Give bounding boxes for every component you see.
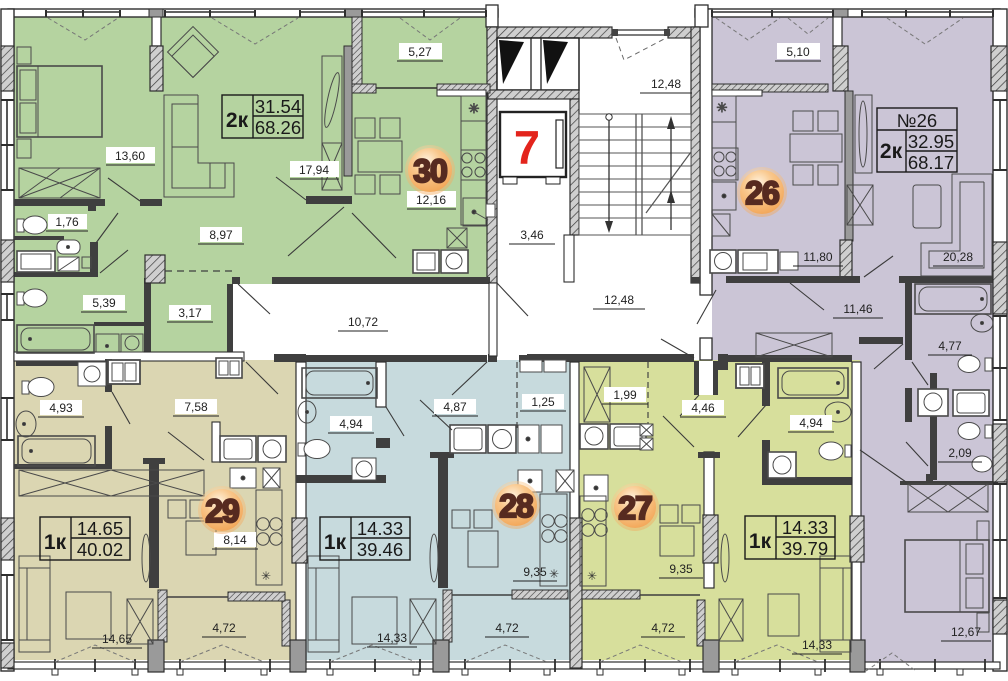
svg-text:68.26: 68.26	[255, 117, 301, 138]
svg-text:14,33: 14,33	[802, 638, 832, 652]
svg-text:14,65: 14,65	[102, 632, 132, 646]
svg-text:11,46: 11,46	[843, 302, 872, 316]
svg-text:3,17: 3,17	[178, 306, 202, 320]
svg-text:9,35: 9,35	[523, 565, 547, 579]
svg-text:4,93: 4,93	[49, 401, 73, 415]
svg-text:13,60: 13,60	[115, 149, 145, 163]
svg-text:12,16: 12,16	[416, 193, 446, 207]
svg-text:4,94: 4,94	[799, 416, 823, 430]
svg-text:3,46: 3,46	[520, 228, 544, 242]
svg-text:✳: ✳	[717, 100, 728, 115]
svg-text:4,72: 4,72	[651, 621, 675, 635]
svg-text:12,48: 12,48	[604, 293, 634, 307]
svg-text:1к: 1к	[44, 531, 67, 554]
svg-text:✳: ✳	[549, 567, 559, 581]
svg-text:11,80: 11,80	[803, 250, 832, 264]
svg-text:39.46: 39.46	[357, 539, 403, 560]
svg-text:4,87: 4,87	[443, 400, 467, 414]
svg-text:14.33: 14.33	[357, 518, 403, 539]
svg-text:4,94: 4,94	[339, 417, 363, 431]
svg-text:27: 27	[618, 490, 652, 526]
svg-text:29: 29	[205, 493, 239, 529]
svg-text:1,25: 1,25	[531, 395, 555, 409]
svg-text:5,39: 5,39	[92, 296, 116, 310]
svg-text:5,10: 5,10	[786, 45, 810, 59]
svg-text:30: 30	[413, 153, 447, 189]
svg-text:2к: 2к	[226, 109, 249, 132]
svg-text:14.65: 14.65	[77, 518, 123, 539]
svg-text:1к: 1к	[324, 531, 347, 554]
svg-text:7,58: 7,58	[184, 400, 208, 414]
svg-text:39.79: 39.79	[782, 538, 828, 559]
svg-text:2,09: 2,09	[948, 446, 972, 460]
svg-text:9,35: 9,35	[669, 562, 693, 576]
svg-text:10,72: 10,72	[348, 315, 378, 329]
svg-text:✳: ✳	[261, 569, 271, 583]
svg-text:8,97: 8,97	[209, 228, 233, 242]
svg-text:4,77: 4,77	[938, 339, 962, 353]
svg-text:5,27: 5,27	[408, 45, 432, 59]
svg-text:4,72: 4,72	[495, 621, 519, 635]
svg-text:1к: 1к	[749, 530, 772, 553]
svg-text:40.02: 40.02	[77, 539, 123, 560]
svg-text:1,99: 1,99	[613, 388, 637, 402]
svg-text:4,72: 4,72	[212, 621, 236, 635]
svg-text:26: 26	[745, 175, 779, 211]
svg-text:✳: ✳	[469, 101, 480, 116]
svg-text:20,28: 20,28	[943, 250, 973, 264]
svg-text:12,48: 12,48	[651, 77, 681, 91]
svg-text:14.33: 14.33	[782, 517, 828, 538]
svg-text:68.17: 68.17	[908, 152, 954, 173]
svg-text:1,76: 1,76	[55, 215, 79, 229]
svg-text:32.95: 32.95	[908, 131, 954, 152]
svg-text:4,46: 4,46	[691, 401, 715, 415]
svg-text:14,33: 14,33	[377, 631, 407, 645]
svg-text:28: 28	[499, 488, 533, 524]
svg-text:2к: 2к	[880, 140, 903, 163]
svg-text:7: 7	[514, 121, 540, 174]
svg-text:31.54: 31.54	[255, 96, 301, 117]
svg-text:12,67: 12,67	[951, 625, 981, 639]
svg-text:8,14: 8,14	[223, 533, 247, 547]
svg-text:✳: ✳	[587, 569, 597, 583]
svg-text:17,94: 17,94	[299, 163, 329, 177]
svg-text:№26: №26	[897, 110, 937, 131]
